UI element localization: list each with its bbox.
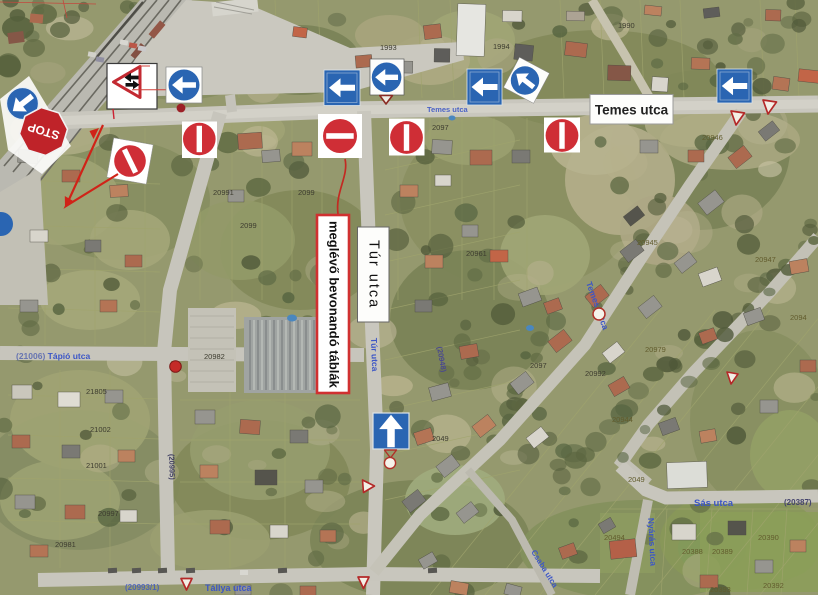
svg-text:Túr utca: Túr utca xyxy=(366,240,382,309)
svg-text:Temes utca: Temes utca xyxy=(595,103,669,118)
svg-text:meglévő bevonandó táblák: meglévő bevonandó táblák xyxy=(327,221,342,389)
